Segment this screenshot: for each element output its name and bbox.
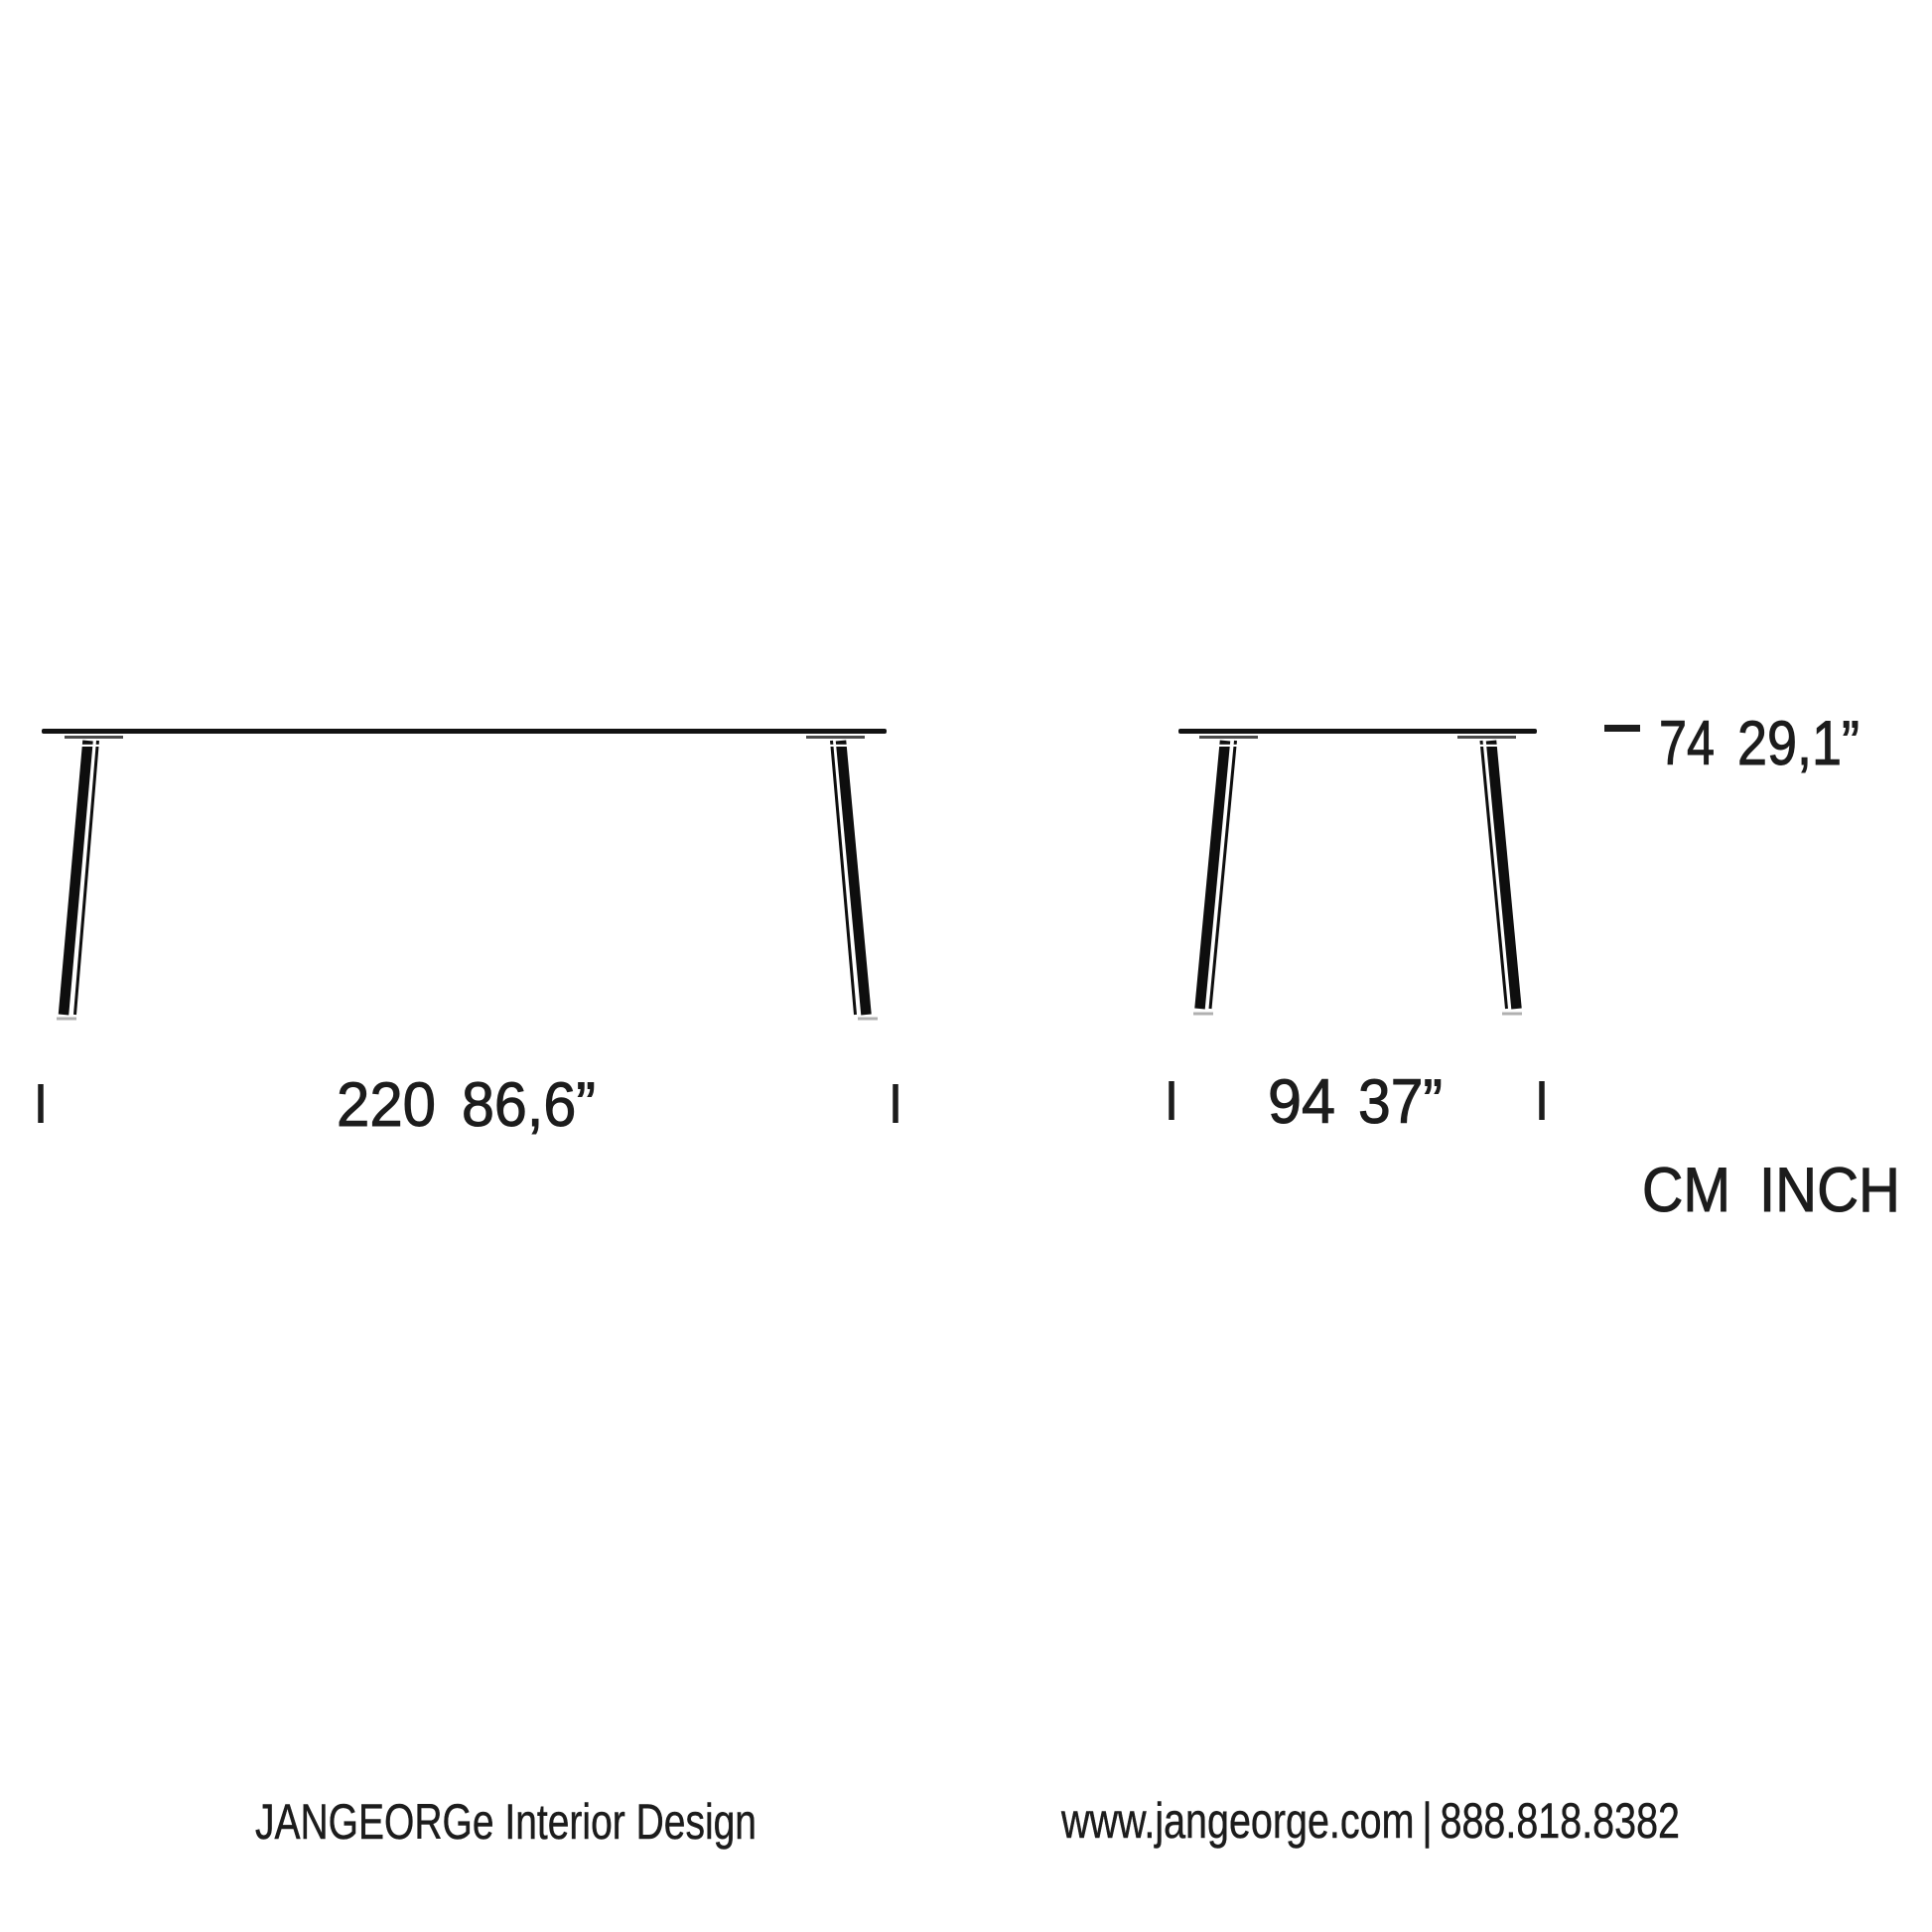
svg-text:INCH: INCH: [1759, 1156, 1900, 1225]
svg-text:www.jangeorge.com | 888.818.83: www.jangeorge.com | 888.818.8382: [1060, 1793, 1680, 1849]
svg-text:JANGEORGe Interior Design: JANGEORGe Interior Design: [255, 1794, 757, 1850]
svg-text:220: 220: [337, 1070, 436, 1140]
svg-text:37”: 37”: [1358, 1067, 1443, 1137]
svg-text:CM: CM: [1642, 1156, 1730, 1225]
svg-text:29,1”: 29,1”: [1737, 709, 1860, 778]
svg-text:94: 94: [1268, 1067, 1335, 1137]
svg-text:74: 74: [1659, 709, 1715, 778]
svg-text:86,6”: 86,6”: [462, 1070, 596, 1140]
